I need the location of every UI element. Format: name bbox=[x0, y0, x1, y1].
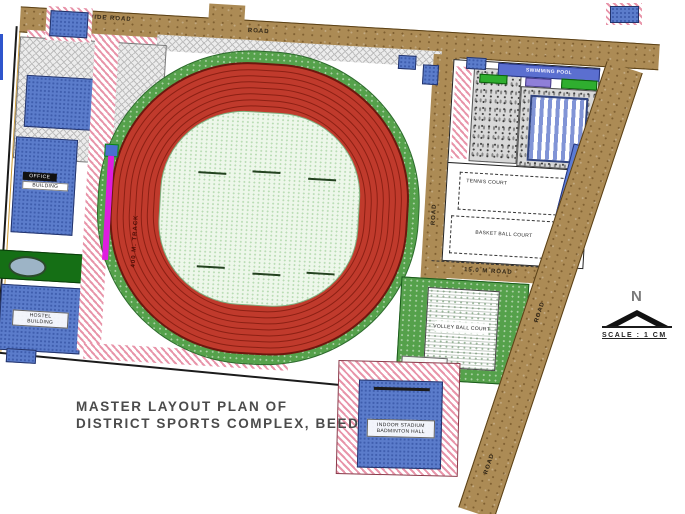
title-line2: DISTRICT SPORTS COMPLEX, BEED bbox=[76, 415, 359, 432]
garden-strip bbox=[0, 249, 88, 284]
playground-label: VOLLEY BALL COURT bbox=[433, 323, 490, 332]
gate-building bbox=[49, 10, 88, 38]
infield-mark bbox=[197, 265, 225, 269]
north-arrow-inner bbox=[618, 316, 656, 326]
top-right-plot-frame bbox=[606, 3, 642, 25]
indoor-stadium-label-2: BADMINTON HALL bbox=[377, 428, 425, 435]
building-office: OFFICE BUILDING bbox=[10, 136, 78, 236]
site-plan-canvas: 60.00 M WIDE ROAD ROAD OFFICE BUILDING H… bbox=[0, 0, 685, 514]
drawing-title: MASTER LAYOUT PLAN OF DISTRICT SPORTS CO… bbox=[76, 398, 359, 432]
court-2-label: BASKET BALL COURT bbox=[475, 230, 533, 239]
hostel-label: HOSTEL BUILDING bbox=[12, 309, 69, 328]
shed-3 bbox=[466, 57, 487, 70]
road-north-label-b: ROAD bbox=[248, 28, 270, 35]
shed-1 bbox=[398, 55, 417, 70]
road-north-stub bbox=[208, 4, 245, 22]
north-letter: N bbox=[631, 288, 643, 305]
compass: N SCALE : 1 CM bbox=[600, 288, 676, 344]
infield-mark bbox=[252, 170, 280, 174]
infield-mark bbox=[198, 171, 226, 175]
infield-mark bbox=[252, 273, 280, 277]
track-infield bbox=[154, 106, 365, 312]
hostel-label-line2: BUILDING bbox=[27, 318, 53, 326]
title-line1: MASTER LAYOUT PLAN OF bbox=[76, 398, 359, 415]
garden-oval bbox=[8, 255, 47, 278]
scale-text: SCALE : 1 CM bbox=[602, 332, 667, 339]
shed-2 bbox=[422, 64, 439, 85]
indoor-stadium-label-box: INDOOR STADIUM BADMINTON HALL bbox=[367, 419, 435, 439]
indoor-stadium-building: INDOOR STADIUM BADMINTON HALL bbox=[357, 379, 443, 469]
indoor-stadium-ridge bbox=[374, 387, 430, 391]
infield-mark bbox=[308, 178, 336, 182]
top-right-plot bbox=[610, 6, 639, 23]
court-1-label: TENNIS COURT bbox=[466, 178, 507, 186]
plan-sheet: 60.00 M WIDE ROAD ROAD OFFICE BUILDING H… bbox=[0, 0, 658, 514]
office-label-sub: BUILDING bbox=[22, 181, 68, 192]
lawn-bar-left bbox=[479, 74, 507, 85]
road-east-label-a: ROAD bbox=[534, 274, 555, 323]
building-left-small bbox=[6, 348, 37, 364]
playground-label-box: VOLLEY BALL COURT bbox=[434, 320, 489, 334]
building-hostel: HOSTEL BUILDING bbox=[0, 284, 83, 355]
road-east-label-b: ROAD bbox=[483, 426, 504, 475]
page-edge-mark bbox=[0, 34, 3, 80]
infield-mark bbox=[307, 272, 335, 276]
north-arrow-base bbox=[602, 326, 672, 328]
